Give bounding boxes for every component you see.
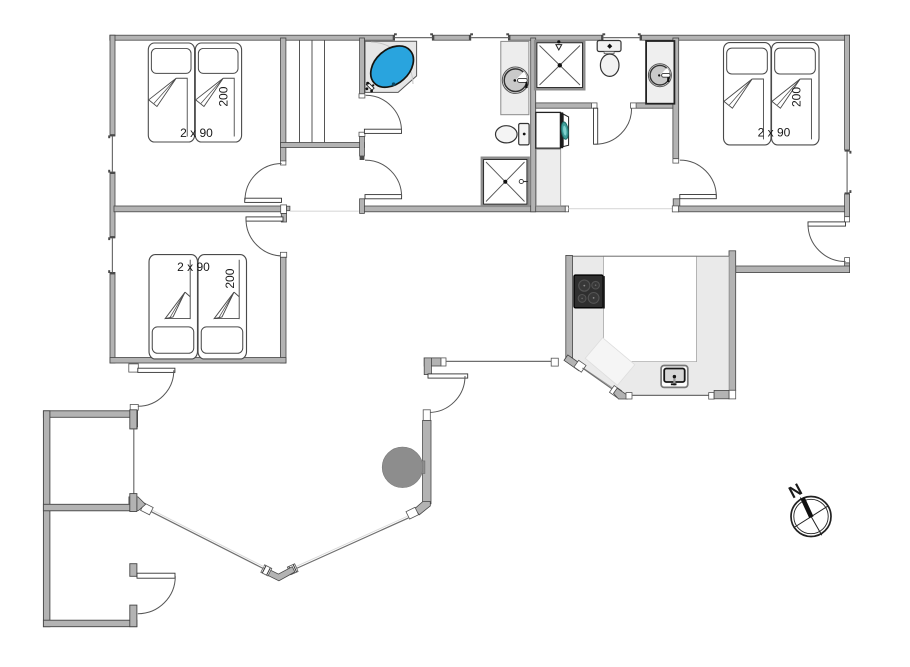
svg-text:200: 200 xyxy=(217,86,231,106)
svg-text:2 x 90: 2 x 90 xyxy=(758,126,791,140)
svg-text:200: 200 xyxy=(789,87,803,107)
svg-text:200: 200 xyxy=(223,268,237,288)
svg-text:2 x 90: 2 x 90 xyxy=(180,126,213,140)
svg-text:2 x 90: 2 x 90 xyxy=(177,260,210,274)
